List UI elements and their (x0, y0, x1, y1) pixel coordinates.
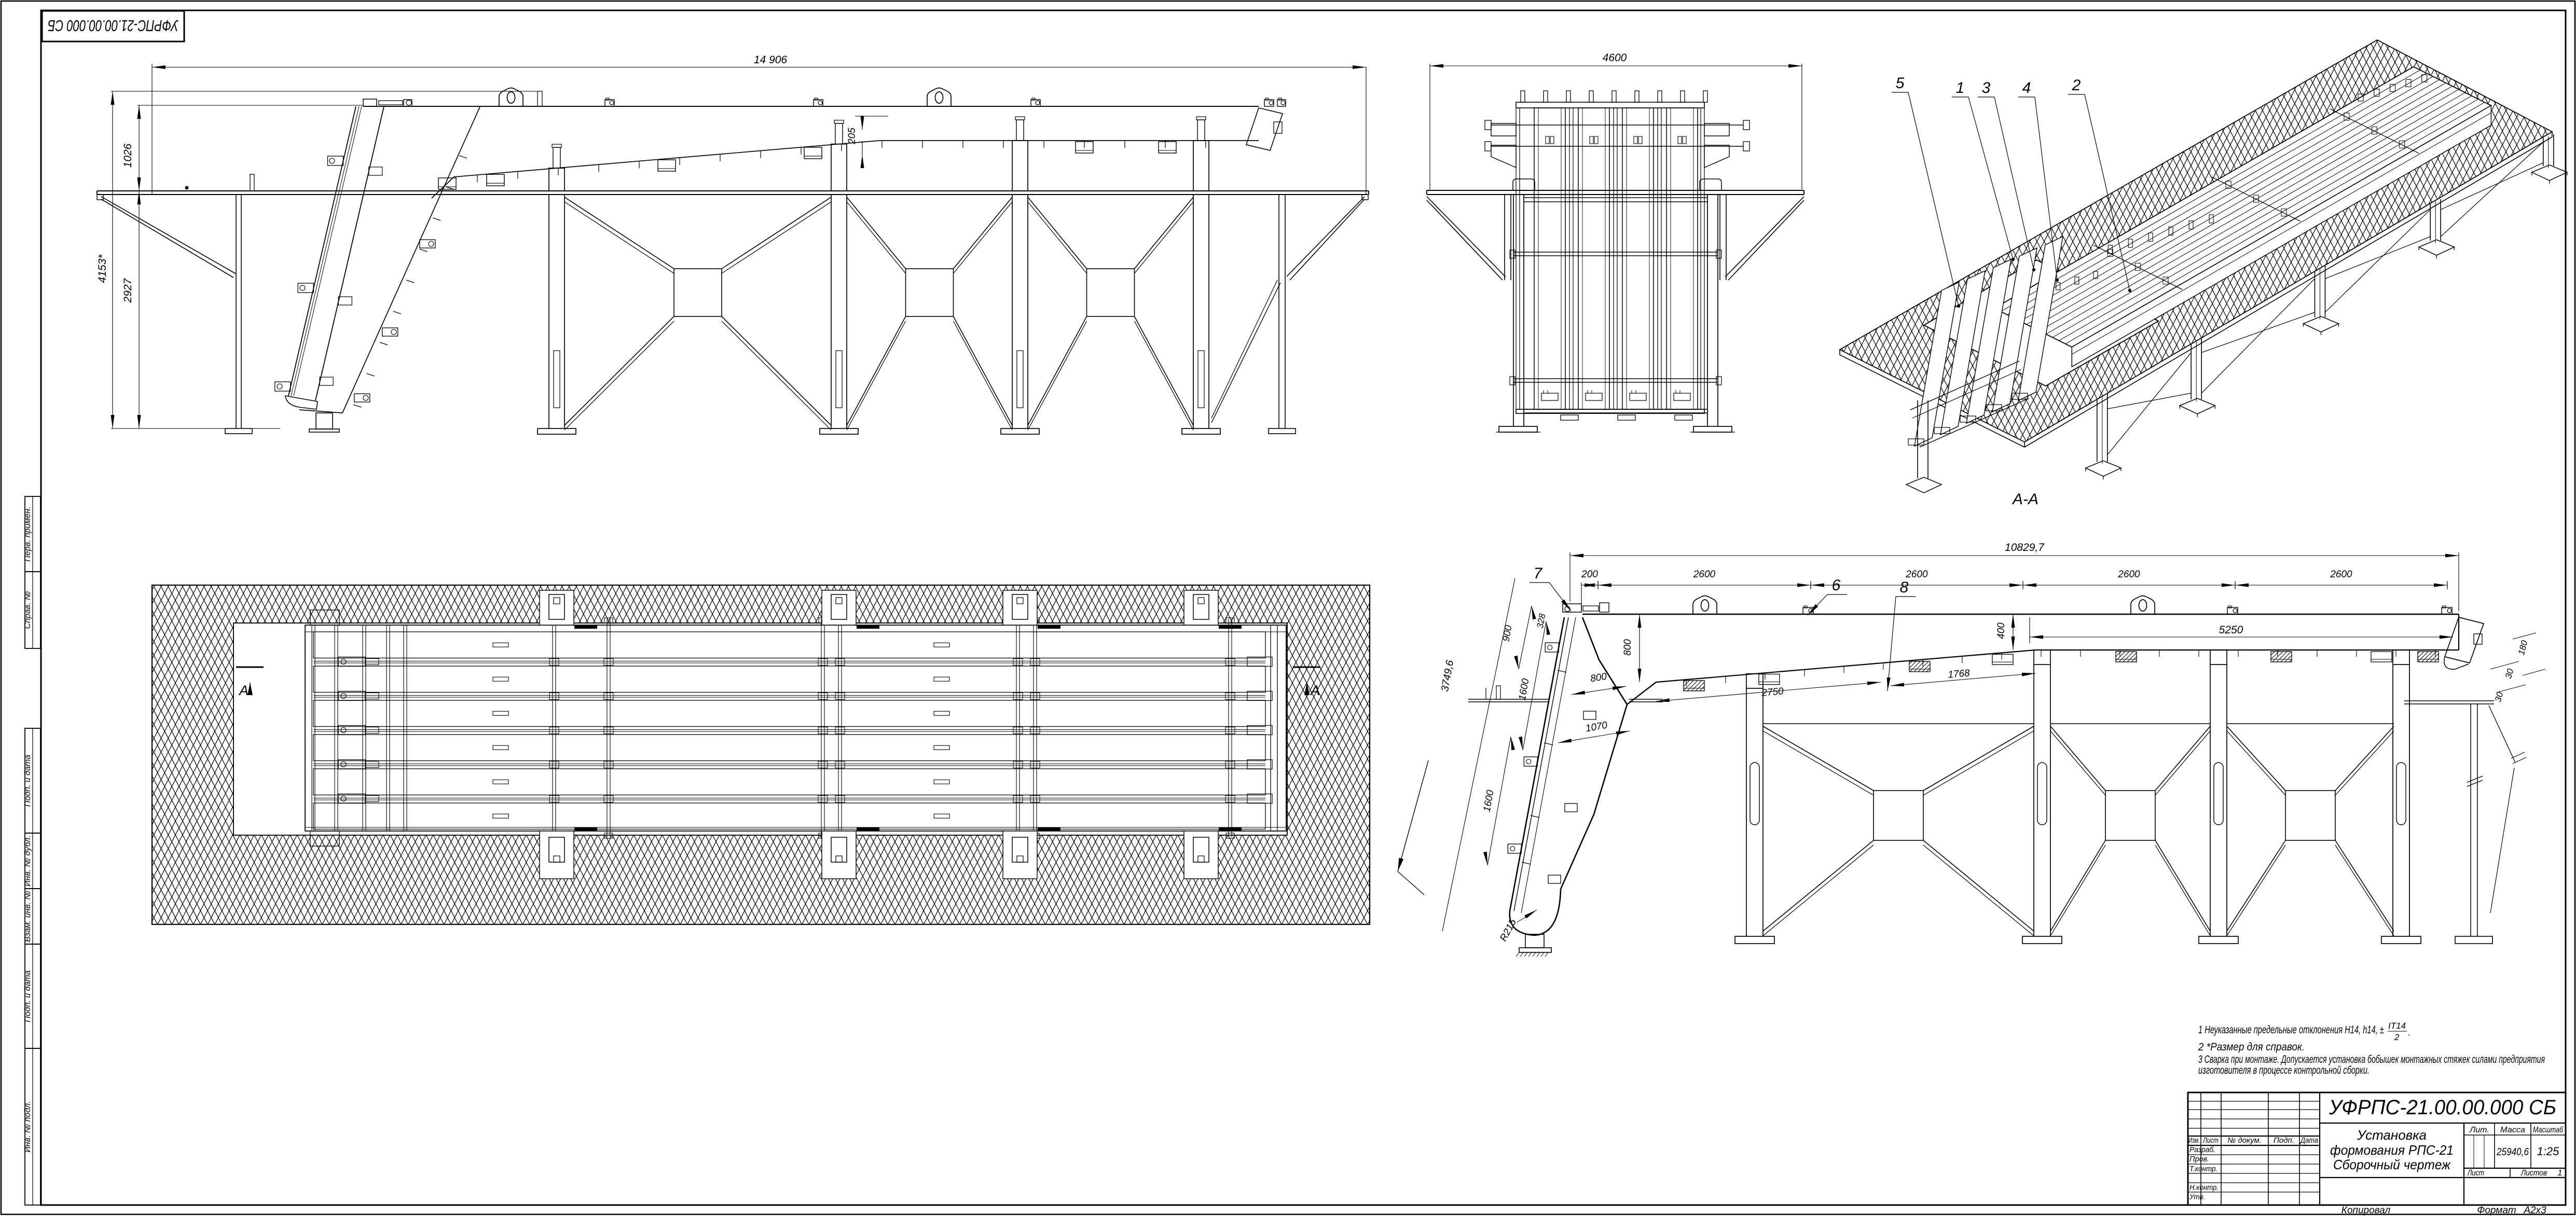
svg-text:Лист: Лист (2467, 1169, 2484, 1178)
svg-text:УФРПС-21.00.00.000 СБ: УФРПС-21.00.00.000 СБ (48, 17, 179, 35)
svg-text:800: 800 (1622, 639, 1633, 656)
svg-text:2600: 2600 (2330, 569, 2352, 580)
svg-text:1: 1 (2558, 1169, 2563, 1178)
svg-text:400: 400 (1996, 622, 2007, 639)
svg-text:1768: 1768 (1948, 668, 1971, 681)
svg-text:Разраб.: Разраб. (2189, 1145, 2215, 1154)
svg-text:Справ. №: Справ. № (23, 591, 32, 629)
svg-text:Перв. примен.: Перв. примен. (23, 506, 32, 561)
svg-text:Подп.: Подп. (2274, 1136, 2294, 1145)
svg-text:200: 200 (1581, 569, 1598, 580)
svg-text:10829,7: 10829,7 (2005, 542, 2045, 553)
svg-text:Дата: Дата (2299, 1136, 2318, 1145)
svg-text:Установка: Установка (2357, 1127, 2427, 1143)
svg-text:1:25: 1:25 (2537, 1145, 2560, 1158)
svg-text:Инв. № подл.: Инв. № подл. (23, 1101, 32, 1152)
svg-text:14 906: 14 906 (754, 54, 788, 66)
svg-text:Сборочный чертеж: Сборочный чертеж (2333, 1157, 2451, 1172)
svg-text:Масса: Масса (2500, 1126, 2525, 1134)
svg-text:Лит.: Лит. (2469, 1126, 2489, 1134)
svg-text:Копировал: Копировал (2341, 1205, 2391, 1215)
svg-text:2600: 2600 (1905, 569, 1928, 580)
svg-text:А2х3: А2х3 (2523, 1205, 2546, 1215)
svg-text:Утв.: Утв. (2189, 1193, 2205, 1201)
svg-text:3: 3 (1982, 79, 1991, 96)
svg-text:Изм.: Изм. (2188, 1136, 2200, 1145)
svg-text:А: А (238, 683, 249, 698)
svg-text:Пров.: Пров. (2189, 1155, 2209, 1164)
svg-text:Лист: Лист (2202, 1136, 2219, 1145)
svg-text:изготовителя в процессе контро: изготовителя в процессе контрольной сбор… (2198, 1064, 2370, 1076)
svg-text:2 *Размер для справок.: 2 *Размер для справок. (2198, 1041, 2305, 1053)
svg-text:формования РПС-21: формования РПС-21 (2330, 1142, 2454, 1158)
svg-text:Подп. и дата: Подп. и дата (23, 755, 32, 807)
svg-text:А-А: А-А (2012, 491, 2038, 508)
svg-text:1 Неуказанные предельные откл: 1 Неуказанные предельные отклонения Н14,… (2198, 1024, 2384, 1036)
svg-text:2600: 2600 (1693, 569, 1716, 580)
svg-text:1026: 1026 (122, 143, 134, 168)
svg-text:УФРПС-21.00.00.000 СБ: УФРПС-21.00.00.000 СБ (2329, 1096, 2556, 1119)
svg-text:Т.контр.: Т.контр. (2189, 1165, 2217, 1173)
svg-text:1: 1 (1956, 79, 1965, 96)
svg-text:Масштаб: Масштаб (2533, 1126, 2564, 1134)
svg-text:25940,6: 25940,6 (2496, 1146, 2529, 1158)
svg-text:Взам. инв. №: Взам. инв. № (23, 891, 32, 942)
svg-text:IT14: IT14 (2388, 1021, 2406, 1031)
svg-text:8: 8 (1900, 579, 1909, 596)
svg-text:205: 205 (847, 128, 858, 145)
svg-text:2927: 2927 (122, 278, 134, 303)
svg-text:Н.контр.: Н.контр. (2189, 1183, 2219, 1192)
svg-text:2: 2 (2072, 77, 2081, 94)
svg-text:6: 6 (1832, 577, 1841, 594)
svg-text:5: 5 (1896, 75, 1905, 92)
svg-text:Инв. № дубл.: Инв. № дубл. (23, 835, 32, 886)
svg-text:4: 4 (2022, 79, 2031, 96)
svg-text:3 Сварка при монтаже. Допуска: 3 Сварка при монтаже. Допускается устано… (2198, 1054, 2545, 1065)
svg-text:Формат: Формат (2477, 1205, 2516, 1215)
svg-text:4153*: 4153* (97, 254, 108, 283)
svg-text:Подп. и дата: Подп. и дата (23, 970, 32, 1022)
svg-text:7: 7 (1534, 565, 1543, 582)
svg-text:А: А (1310, 683, 1320, 698)
svg-text:2750: 2750 (1761, 686, 1784, 699)
svg-text:№ докум.: № докум. (2227, 1136, 2262, 1145)
svg-text:.: . (2408, 1028, 2410, 1037)
svg-text:2600: 2600 (2117, 569, 2140, 580)
svg-text:Листов: Листов (2520, 1169, 2547, 1178)
svg-text:4600: 4600 (1603, 52, 1627, 64)
svg-text:2: 2 (2394, 1032, 2400, 1042)
svg-text:5250: 5250 (2219, 624, 2243, 636)
